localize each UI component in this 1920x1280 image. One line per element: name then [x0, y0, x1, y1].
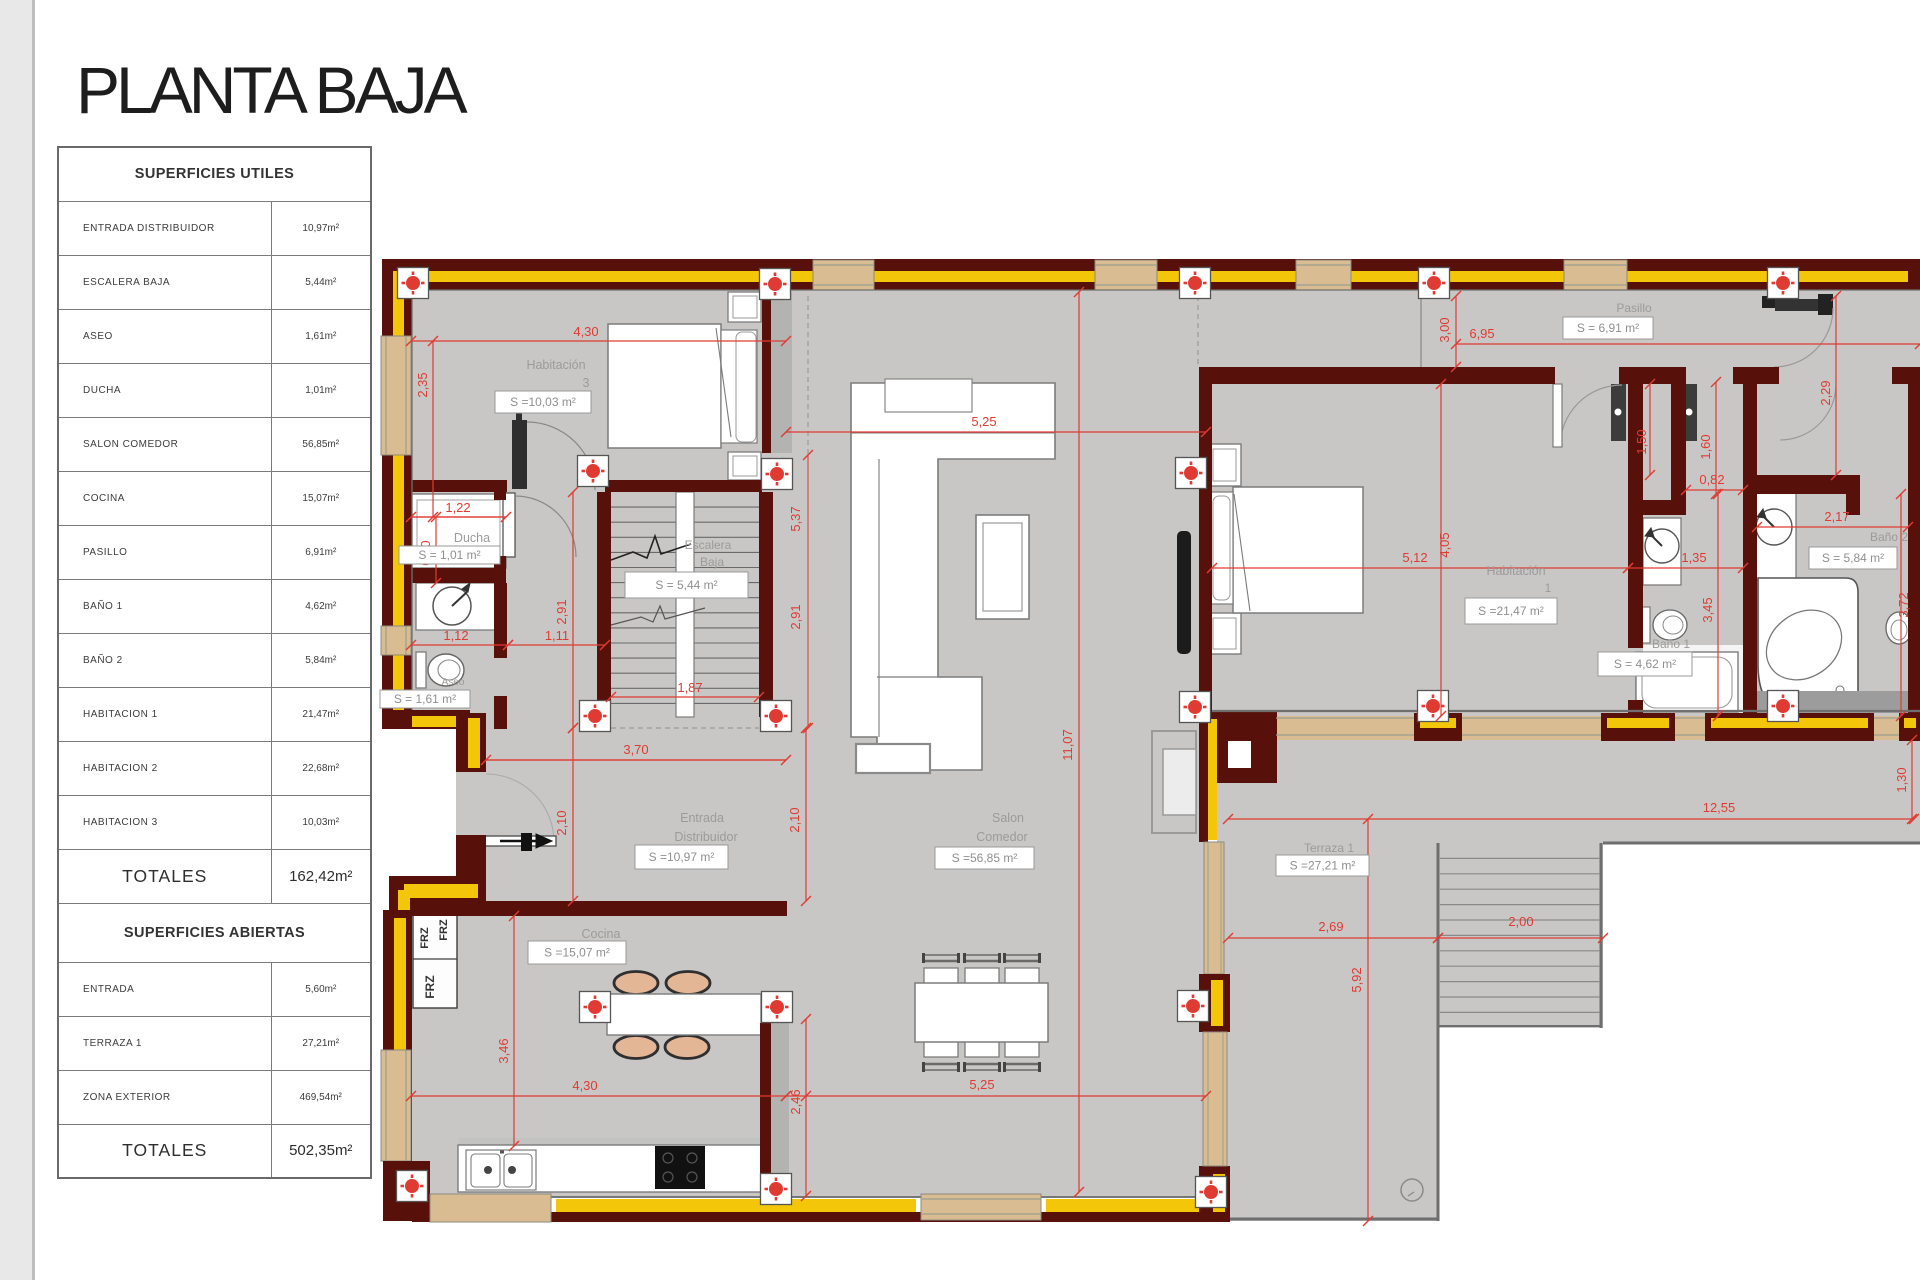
svg-text:2,29: 2,29 — [1818, 380, 1833, 405]
svg-text:5,25: 5,25 — [969, 1077, 994, 1092]
svg-text:5,92: 5,92 — [1349, 967, 1364, 992]
svg-text:FRZ: FRZ — [419, 927, 431, 949]
svg-text:Cocina: Cocina — [582, 927, 621, 941]
svg-text:S =21,47 m²: S =21,47 m² — [1478, 604, 1544, 618]
svg-text:1,22: 1,22 — [445, 500, 470, 515]
svg-text:Baja: Baja — [700, 555, 724, 569]
svg-text:4,30: 4,30 — [572, 1078, 597, 1093]
svg-text:1,12: 1,12 — [443, 628, 468, 643]
svg-text:2,10: 2,10 — [554, 810, 569, 835]
svg-text:6,95: 6,95 — [1469, 326, 1494, 341]
svg-text:Comedor: Comedor — [976, 830, 1027, 844]
svg-text:0,82: 0,82 — [1699, 472, 1724, 487]
svg-text:3: 3 — [583, 376, 590, 390]
svg-text:S = 5,44 m²: S = 5,44 m² — [655, 578, 717, 592]
svg-text:12,55: 12,55 — [1703, 800, 1736, 815]
svg-text:Terraza 1: Terraza 1 — [1304, 841, 1354, 855]
svg-text:Baño 2: Baño 2 — [1870, 530, 1908, 544]
svg-text:3,45: 3,45 — [1700, 597, 1715, 622]
svg-text:S = 5,84 m²: S = 5,84 m² — [1822, 551, 1884, 565]
svg-text:Entrada: Entrada — [680, 811, 724, 825]
svg-text:FRZ: FRZ — [423, 975, 437, 998]
svg-text:Aseo: Aseo — [442, 677, 465, 688]
svg-text:5,37: 5,37 — [788, 506, 803, 531]
svg-text:1,30: 1,30 — [1894, 767, 1909, 792]
svg-text:4,05: 4,05 — [1437, 532, 1452, 557]
svg-text:1,50: 1,50 — [1634, 429, 1649, 454]
svg-text:Distribuidor: Distribuidor — [674, 830, 737, 844]
svg-text:Ducha: Ducha — [454, 531, 490, 545]
svg-text:S =27,21 m²: S =27,21 m² — [1290, 859, 1356, 873]
svg-text:Escalera: Escalera — [685, 538, 732, 552]
svg-text:S = 4,62 m²: S = 4,62 m² — [1614, 657, 1676, 671]
svg-text:S =56,85 m²: S =56,85 m² — [952, 851, 1018, 865]
svg-text:3,00: 3,00 — [1437, 317, 1452, 342]
svg-text:4,30: 4,30 — [573, 324, 598, 339]
svg-text:2,91: 2,91 — [788, 604, 803, 629]
svg-text:S = 1,61 m²: S = 1,61 m² — [394, 692, 456, 706]
svg-text:S = 6,91 m²: S = 6,91 m² — [1577, 321, 1639, 335]
svg-text:Habitación: Habitación — [526, 358, 585, 372]
svg-text:2,69: 2,69 — [1318, 919, 1343, 934]
svg-text:5,12: 5,12 — [1402, 550, 1427, 565]
svg-text:11,07: 11,07 — [1060, 729, 1075, 761]
svg-text:Pasillo: Pasillo — [1616, 301, 1652, 315]
svg-text:1,60: 1,60 — [1698, 434, 1713, 459]
svg-text:2,35: 2,35 — [415, 372, 430, 397]
svg-text:FRZ: FRZ — [438, 919, 450, 941]
svg-text:1,11: 1,11 — [545, 628, 569, 643]
svg-text:1,35: 1,35 — [1681, 550, 1706, 565]
svg-text:S = 1,01 m²: S = 1,01 m² — [418, 548, 480, 562]
svg-text:Salon: Salon — [992, 811, 1024, 825]
svg-text:Habitación: Habitación — [1486, 564, 1545, 578]
svg-text:1,87: 1,87 — [677, 680, 702, 695]
svg-text:2,46: 2,46 — [788, 1089, 803, 1114]
svg-text:2,10: 2,10 — [787, 807, 802, 832]
svg-text:S =10,03 m²: S =10,03 m² — [510, 395, 576, 409]
svg-text:2,17: 2,17 — [1824, 509, 1849, 524]
svg-text:3,72: 3,72 — [1896, 592, 1911, 617]
svg-text:S =15,07 m²: S =15,07 m² — [544, 946, 610, 960]
svg-text:2,00: 2,00 — [1508, 914, 1533, 929]
svg-text:S =10,97 m²: S =10,97 m² — [649, 850, 715, 864]
svg-text:3,46: 3,46 — [496, 1038, 511, 1063]
svg-text:3,70: 3,70 — [623, 742, 648, 757]
svg-text:1: 1 — [1545, 581, 1552, 595]
svg-text:Baño 1: Baño 1 — [1652, 637, 1690, 651]
svg-text:2,91: 2,91 — [554, 599, 569, 624]
svg-text:5,25: 5,25 — [971, 414, 996, 429]
